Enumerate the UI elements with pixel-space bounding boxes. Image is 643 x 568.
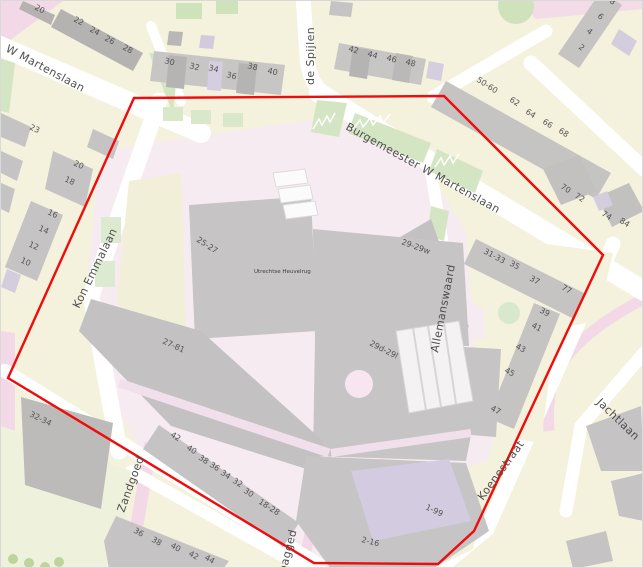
map-viewport[interactable]: W Martenslaande SpijlenBurgemeester W Ma… xyxy=(0,0,643,568)
map-canvas: W Martenslaande SpijlenBurgemeester W Ma… xyxy=(1,1,643,568)
place-label: Utrechtse Heuvelrug xyxy=(254,269,311,275)
street-label: de Spijlen xyxy=(304,27,317,85)
